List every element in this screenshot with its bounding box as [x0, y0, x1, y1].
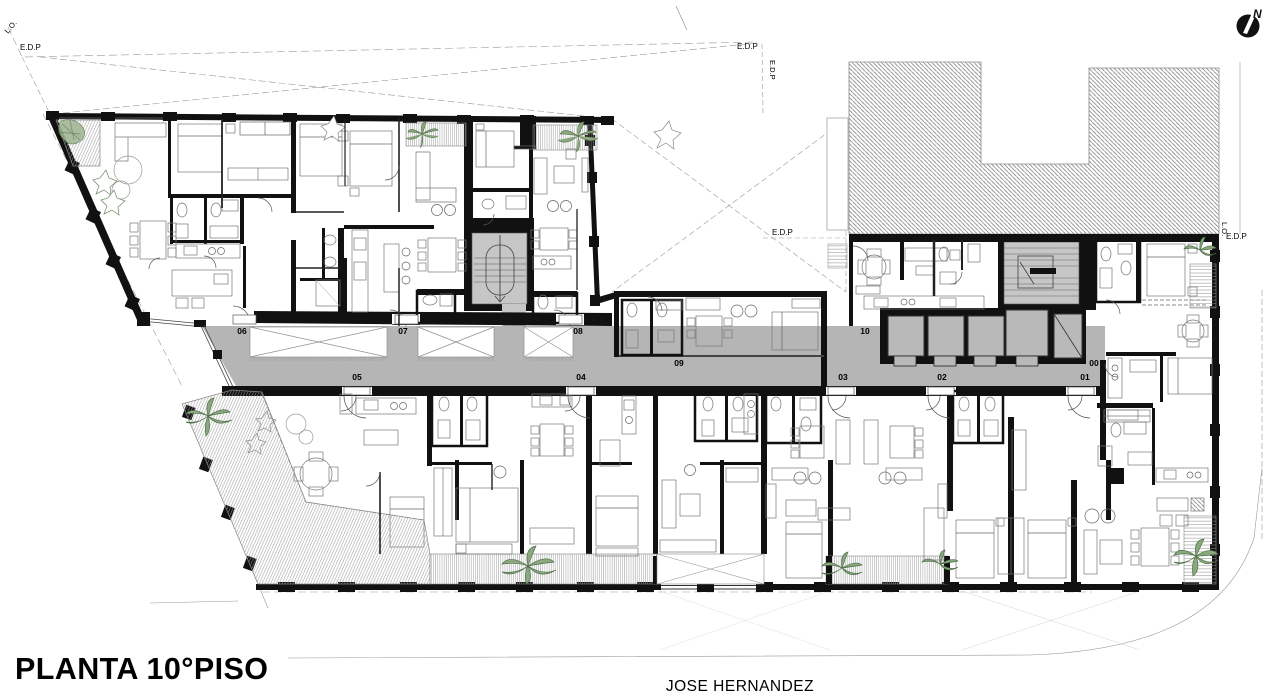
svg-text:04: 04 — [576, 372, 586, 382]
svg-text:03: 03 — [838, 372, 848, 382]
svg-text:E.D.P: E.D.P — [737, 42, 758, 51]
svg-text:N: N — [1253, 7, 1262, 21]
svg-text:E.D.P: E.D.P — [20, 43, 41, 52]
svg-text:E.D.P: E.D.P — [768, 60, 777, 80]
svg-text:09: 09 — [674, 358, 684, 368]
svg-text:05: 05 — [352, 372, 362, 382]
svg-text:E.D.P: E.D.P — [772, 228, 793, 237]
svg-text:10: 10 — [860, 326, 870, 336]
svg-text:01: 01 — [1080, 372, 1090, 382]
svg-text:PLANTA 10°PISO: PLANTA 10°PISO — [15, 652, 268, 686]
svg-text:00: 00 — [1089, 358, 1099, 368]
svg-text:06: 06 — [237, 326, 247, 336]
svg-text:02: 02 — [937, 372, 947, 382]
svg-text:08: 08 — [573, 326, 583, 336]
svg-text:JOSE HERNANDEZ: JOSE HERNANDEZ — [666, 678, 814, 695]
svg-text:07: 07 — [398, 326, 408, 336]
svg-text:L.O.: L.O. — [1220, 222, 1229, 236]
